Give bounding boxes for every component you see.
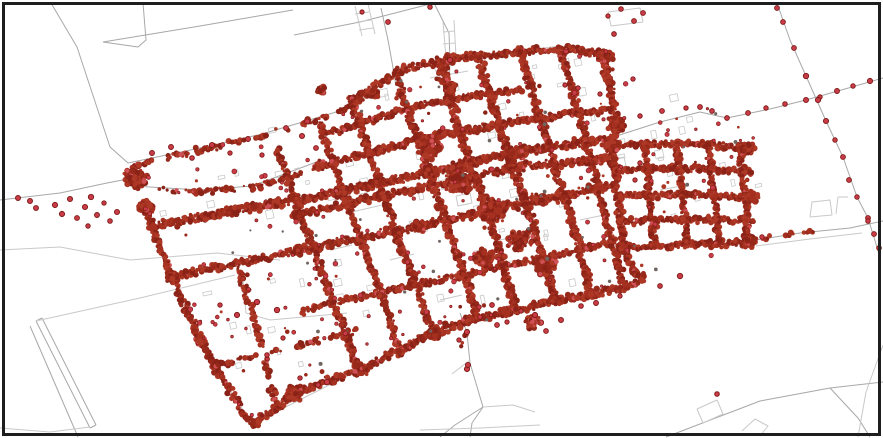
map-figure [0,0,883,438]
dot-density-street-map-canvas [0,0,883,438]
